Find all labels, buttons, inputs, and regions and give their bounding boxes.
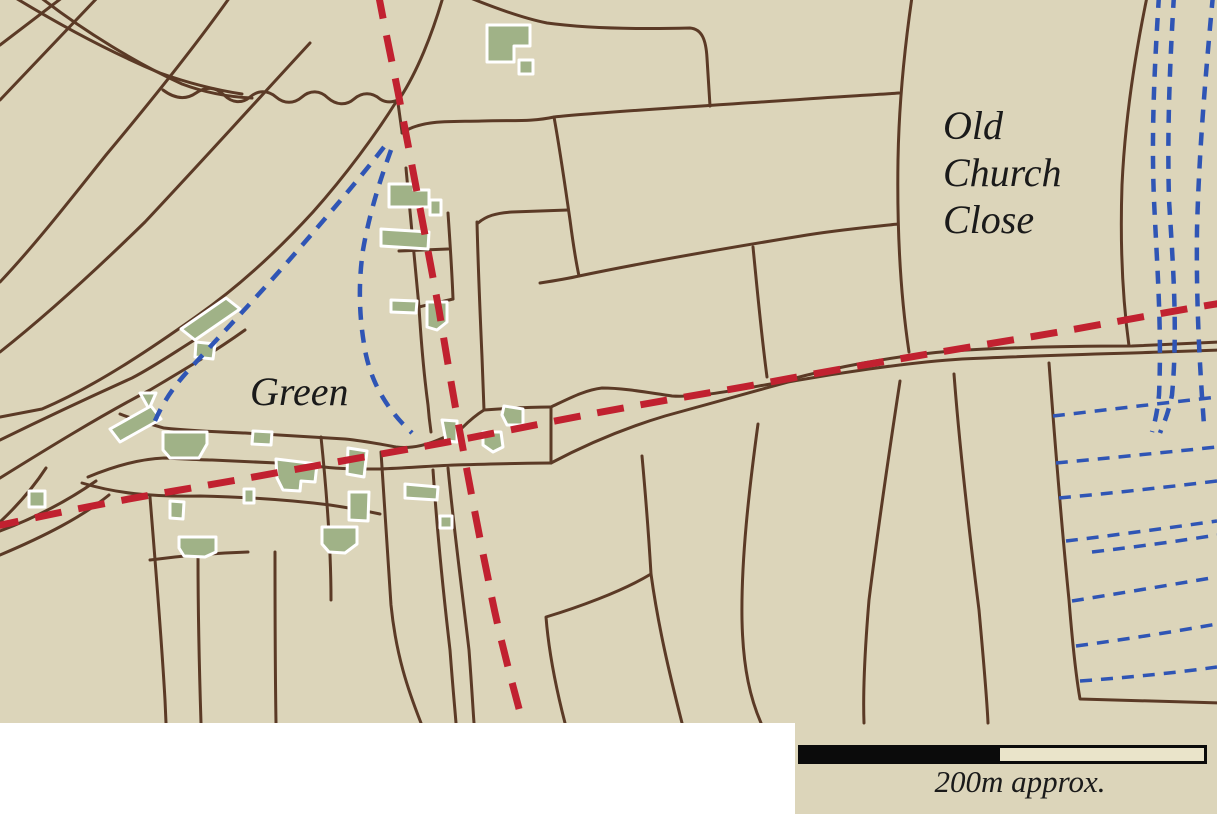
building [170,501,184,519]
building [252,431,272,445]
map-background [0,0,1217,814]
building [391,300,417,313]
building [179,537,216,557]
building [163,432,207,458]
building [519,60,533,74]
building [502,406,523,425]
map-canvas [0,0,1217,814]
building [322,527,357,553]
scale-bar-filled-segment [798,745,997,764]
building [349,492,369,521]
building [405,484,438,500]
building [430,200,441,215]
building [29,491,45,507]
historic-map: Green Old Church Close 200m approx. [0,0,1217,814]
scale-bar-empty-segment [997,745,1207,764]
building [244,489,254,503]
building [440,516,452,528]
